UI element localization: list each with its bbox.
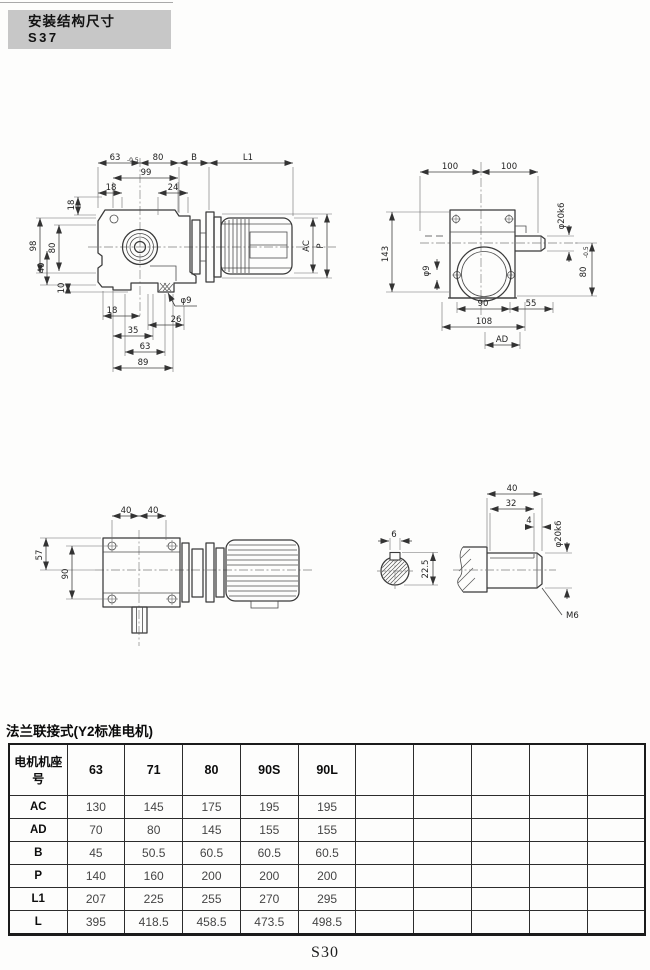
dim-99: 99 [141, 168, 152, 178]
col-header-empty [356, 744, 414, 796]
cell-empty [414, 888, 472, 911]
side-view-drawing: 100 100 143 φ9 φ20k6 80 -0.5 [381, 162, 597, 349]
cell-empty [529, 865, 587, 888]
cell-empty [414, 819, 472, 842]
dim-40-left: 40 [37, 263, 47, 274]
cell: 155 [298, 819, 356, 842]
col-header: 90S [240, 744, 298, 796]
bolt-hole [110, 215, 118, 223]
cell-empty [587, 888, 645, 911]
cell-empty [529, 888, 587, 911]
cell-empty [472, 911, 530, 935]
dim-80-left: 80 [48, 243, 58, 254]
catalog-page: 安装结构尺寸 S37 [0, 0, 650, 970]
cell: 60.5 [183, 842, 241, 865]
side-view-dimensions: 100 100 143 φ9 φ20k6 80 -0.5 [381, 162, 597, 349]
shaft-detail-drawing: 6 22.5 [365, 484, 579, 621]
cell: 395 [67, 911, 125, 935]
cell: 225 [125, 888, 183, 911]
cell: 45 [67, 842, 125, 865]
key-slot [390, 553, 400, 561]
dim-63-top: 63 [110, 153, 121, 163]
dim-143: 143 [381, 246, 391, 262]
dim-L1: L1 [243, 153, 253, 163]
table-header-row: 电机机座号 63 71 80 90S 90L [9, 744, 645, 796]
dim-90-side: 90 [478, 299, 489, 309]
dim-10-left: 10 [57, 283, 67, 294]
cell-empty [414, 865, 472, 888]
front-view-drawing: 63 -0.5 80 B L1 99 18 24 [29, 153, 336, 372]
shaft-cross-section [365, 553, 421, 590]
cell-empty [414, 796, 472, 819]
cell-empty [472, 865, 530, 888]
dim-55: 55 [526, 299, 537, 309]
cell: 458.5 [183, 911, 241, 935]
cell-empty [356, 819, 414, 842]
row-label: B [9, 842, 67, 865]
top-view-drawing: 40 40 57 90 [35, 506, 312, 646]
row-label: AC [9, 796, 67, 819]
dim-35: 35 [128, 326, 139, 336]
output-bore [457, 247, 511, 301]
dim-40-top-a: 40 [121, 506, 132, 516]
cell-empty [356, 911, 414, 935]
cell-empty [529, 796, 587, 819]
table-row: AD 70 80 145 155 155 [9, 819, 645, 842]
motor-body [221, 218, 292, 274]
dim-key-width: 6 [391, 530, 396, 540]
cell: 200 [240, 865, 298, 888]
cell-empty [356, 888, 414, 911]
dim-89: 89 [138, 358, 149, 368]
dim-phi9-side: φ9 [422, 265, 432, 276]
dim-18-left: 18 [67, 200, 77, 211]
cell: 270 [240, 888, 298, 911]
cell: 175 [183, 796, 241, 819]
dim-63-tolerance: -0.5 [127, 157, 139, 164]
motor-foot [251, 601, 278, 608]
dim-80-top: 80 [153, 153, 164, 163]
cell-empty [587, 842, 645, 865]
table-row: P 140 160 200 200 200 [9, 865, 645, 888]
col-header-empty [587, 744, 645, 796]
table-title: 法兰联接式(Y2标准电机) [6, 720, 153, 740]
dim-phi20k6-side: φ20k6 [557, 203, 567, 230]
dim-98-left: 98 [29, 241, 39, 252]
cell: 60.5 [298, 842, 356, 865]
cell-empty [356, 865, 414, 888]
dim-4: 4 [526, 516, 531, 526]
row-label: L [9, 911, 67, 935]
dim-80-side: 80 [579, 267, 589, 278]
table-row: L1 207 225 255 270 295 [9, 888, 645, 911]
cell: 195 [240, 796, 298, 819]
cell-empty [472, 819, 530, 842]
dim-18-bottom: 18 [107, 306, 118, 316]
cell: 418.5 [125, 911, 183, 935]
cell-empty [587, 796, 645, 819]
page-number: S30 [0, 944, 650, 962]
dim-22-5: 22.5 [421, 560, 431, 579]
dim-32: 32 [506, 499, 517, 509]
table-row: B 45 50.5 60.5 60.5 60.5 [9, 842, 645, 865]
cell: 498.5 [298, 911, 356, 935]
cell-empty [472, 842, 530, 865]
dim-100-left: 100 [442, 162, 458, 172]
row-label: AD [9, 819, 67, 842]
cell: 195 [298, 796, 356, 819]
cell-empty [414, 842, 472, 865]
dim-P: P [316, 243, 326, 248]
top-output-shaft [132, 607, 147, 633]
cell: 50.5 [125, 842, 183, 865]
front-view-dimensions: 63 -0.5 80 B L1 99 18 24 [29, 153, 332, 372]
dim-AC: AC [302, 240, 312, 252]
dimension-table: 电机机座号 63 71 80 90S 90L AC 130 145 175 19… [8, 743, 646, 936]
gearbox-body [98, 210, 196, 292]
dim-phi9-front: φ9 [180, 296, 191, 306]
dim-phi20k6-shaft: φ20k6 [554, 521, 564, 548]
cell-empty [356, 842, 414, 865]
cell-empty [529, 842, 587, 865]
cell: 145 [183, 819, 241, 842]
top-adapter [182, 543, 224, 602]
cell: 200 [298, 865, 356, 888]
cell-empty [529, 819, 587, 842]
table-row: AC 130 145 175 195 195 [9, 796, 645, 819]
dim-B: B [191, 153, 197, 163]
dim-63-bottom: 63 [140, 342, 151, 352]
col-header: 63 [67, 744, 125, 796]
cell-empty [587, 865, 645, 888]
input-shaft [515, 236, 545, 251]
cell: 70 [67, 819, 125, 842]
col-header: 90L [298, 744, 356, 796]
cell-empty [587, 819, 645, 842]
cell: 295 [298, 888, 356, 911]
cell-empty [414, 911, 472, 935]
cell-empty [587, 911, 645, 935]
dim-40-top-b: 40 [148, 506, 159, 516]
cell: 207 [67, 888, 125, 911]
cell: 255 [183, 888, 241, 911]
cell: 145 [125, 796, 183, 819]
shaft-side-view [453, 547, 556, 592]
dim-40-shaft: 40 [507, 484, 518, 494]
cell-empty [472, 888, 530, 911]
top-housing [103, 538, 180, 607]
dim-26: 26 [171, 315, 182, 325]
col-header: 80 [183, 744, 241, 796]
dim-24: 24 [168, 183, 179, 193]
col-header-empty [414, 744, 472, 796]
dim-57: 57 [35, 550, 45, 561]
dim-AD: AD [496, 335, 509, 345]
side-housing [425, 210, 545, 301]
row-label: P [9, 865, 67, 888]
cell-empty [356, 796, 414, 819]
cell: 155 [240, 819, 298, 842]
col-header: 71 [125, 744, 183, 796]
cell: 140 [67, 865, 125, 888]
cell-empty [529, 911, 587, 935]
dim-80-tolerance: -0.5 [583, 246, 590, 258]
dim-108: 108 [476, 317, 492, 327]
dim-90-topview: 90 [61, 569, 71, 580]
top-view-dimensions: 40 40 57 90 [35, 506, 166, 599]
cell: 160 [125, 865, 183, 888]
dim-18-top: 18 [106, 183, 117, 193]
cell: 60.5 [240, 842, 298, 865]
row-label: L1 [9, 888, 67, 911]
cell: 200 [183, 865, 241, 888]
top-motor [226, 540, 299, 608]
table-row: L 395 418.5 458.5 473.5 498.5 [9, 911, 645, 935]
cell-empty [472, 796, 530, 819]
dim-M6: M6 [566, 611, 579, 621]
cell: 80 [125, 819, 183, 842]
dim-100-right: 100 [501, 162, 517, 172]
cell: 473.5 [240, 911, 298, 935]
col-header-empty [472, 744, 530, 796]
technical-drawings: 63 -0.5 80 B L1 99 18 24 [0, 0, 650, 700]
frame-size-header: 电机机座号 [9, 744, 67, 796]
cell: 130 [67, 796, 125, 819]
col-header-empty [529, 744, 587, 796]
